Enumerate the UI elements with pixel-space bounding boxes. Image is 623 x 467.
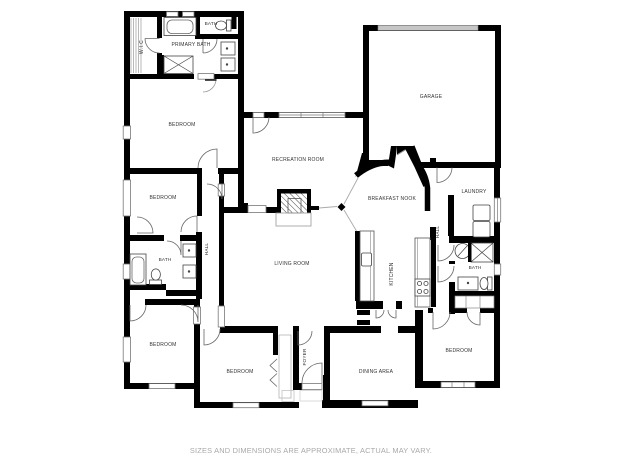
svg-text:LIVING ROOM: LIVING ROOM bbox=[274, 261, 309, 267]
svg-text:BATH: BATH bbox=[159, 257, 172, 262]
svg-text:HALL: HALL bbox=[204, 243, 209, 256]
svg-text:GARAGE: GARAGE bbox=[420, 94, 443, 100]
svg-text:BEDROOM: BEDROOM bbox=[445, 348, 472, 354]
svg-text:BEDROOM: BEDROOM bbox=[226, 369, 253, 375]
svg-text:BEDROOM: BEDROOM bbox=[168, 122, 195, 128]
svg-text:FOYER: FOYER bbox=[302, 348, 307, 365]
svg-text:LAUNDRY: LAUNDRY bbox=[461, 189, 487, 195]
svg-text:BEDROOM: BEDROOM bbox=[149, 342, 176, 348]
svg-text:BATH: BATH bbox=[205, 21, 218, 26]
svg-text:KITCHEN: KITCHEN bbox=[389, 262, 395, 285]
svg-text:DINING AREA: DINING AREA bbox=[359, 369, 394, 375]
svg-text:BREAKFAST NOOK: BREAKFAST NOOK bbox=[368, 196, 416, 202]
svg-text:PRIMARY BATH: PRIMARY BATH bbox=[171, 42, 210, 48]
svg-text:W.I.C: W.I.C bbox=[139, 40, 145, 54]
svg-text:HALL: HALL bbox=[435, 226, 440, 239]
svg-text:RECREATION ROOM: RECREATION ROOM bbox=[272, 157, 324, 163]
svg-text:BATH: BATH bbox=[469, 265, 482, 270]
svg-text:BEDROOM: BEDROOM bbox=[149, 195, 176, 201]
svg-text:SIZES AND DIMENSIONS ARE APPRO: SIZES AND DIMENSIONS ARE APPROXIMATE, AC… bbox=[190, 446, 432, 455]
